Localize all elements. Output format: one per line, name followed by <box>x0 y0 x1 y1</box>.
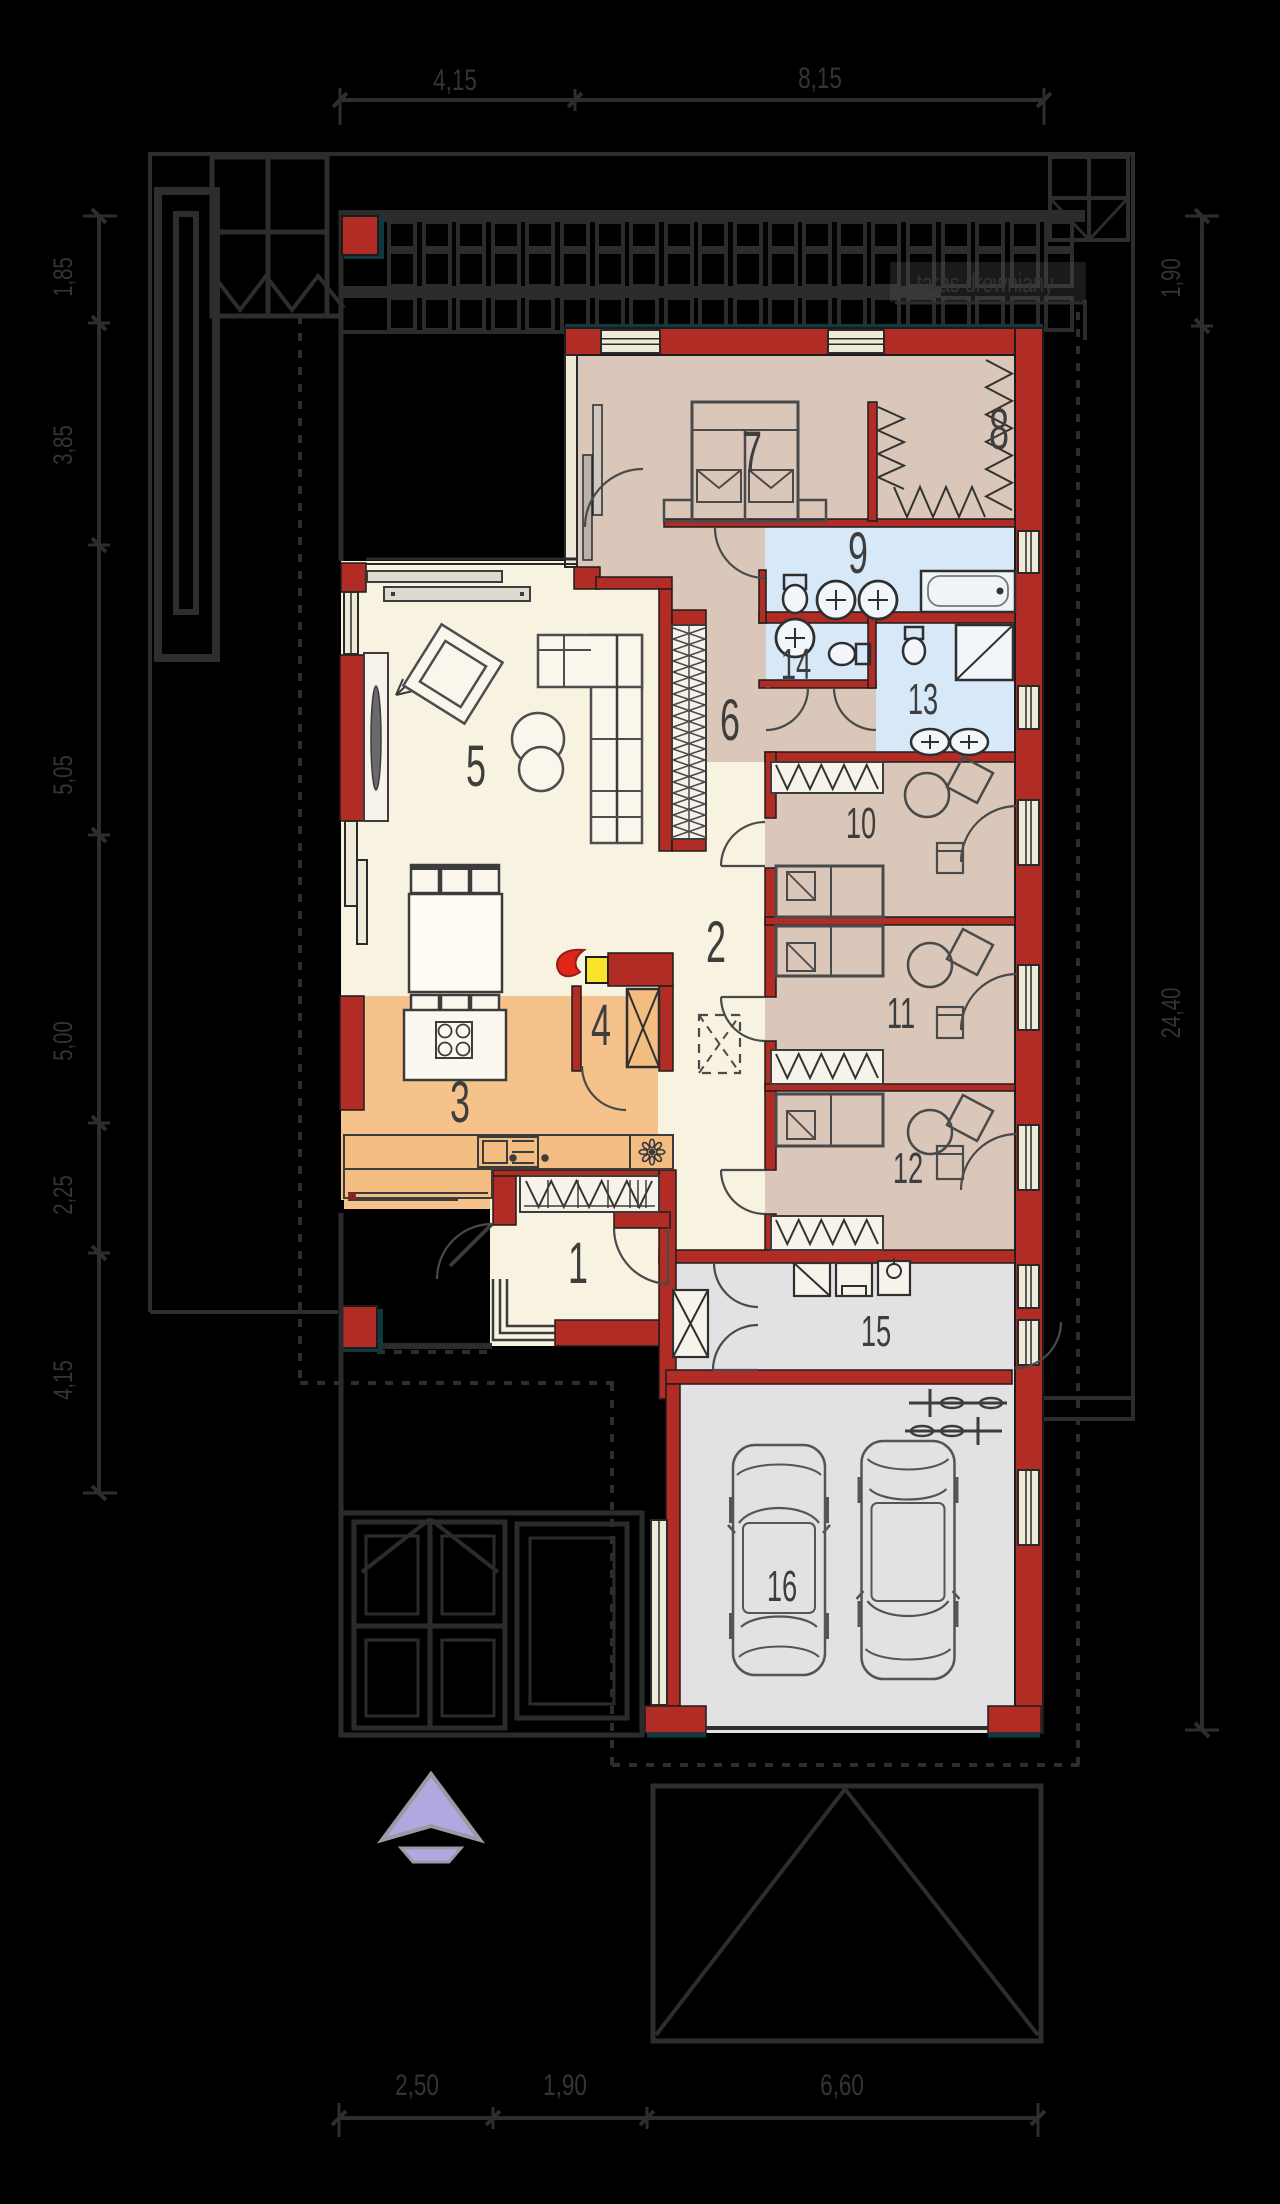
svg-text:2,25: 2,25 <box>48 1175 79 1214</box>
svg-text:8,15: 8,15 <box>798 61 842 95</box>
svg-text:8: 8 <box>989 397 1009 462</box>
svg-text:12: 12 <box>893 1143 923 1192</box>
svg-text:taras drewniany: taras drewniany <box>916 268 1053 298</box>
svg-text:1,90: 1,90 <box>543 2068 587 2102</box>
svg-text:3,85: 3,85 <box>48 425 79 464</box>
svg-text:4: 4 <box>591 993 611 1058</box>
svg-text:10: 10 <box>846 798 876 847</box>
svg-text:1,85: 1,85 <box>48 257 79 296</box>
svg-text:4,15: 4,15 <box>433 63 477 97</box>
svg-text:3: 3 <box>450 1070 470 1135</box>
svg-text:16: 16 <box>767 1561 797 1610</box>
svg-text:13: 13 <box>908 674 938 723</box>
svg-text:5: 5 <box>466 734 486 799</box>
svg-text:2: 2 <box>706 910 726 975</box>
svg-text:5,05: 5,05 <box>48 755 79 794</box>
svg-text:11: 11 <box>887 988 915 1037</box>
svg-text:1: 1 <box>568 1231 588 1296</box>
svg-text:5,00: 5,00 <box>48 1021 79 1060</box>
svg-text:6: 6 <box>720 688 740 753</box>
svg-text:9: 9 <box>848 521 868 586</box>
svg-text:2,50: 2,50 <box>395 2068 439 2102</box>
svg-text:15: 15 <box>861 1306 891 1355</box>
svg-text:14: 14 <box>781 639 811 688</box>
svg-text:7: 7 <box>742 420 762 485</box>
svg-text:4,15: 4,15 <box>48 1360 79 1399</box>
svg-text:1,90: 1,90 <box>1156 258 1187 297</box>
svg-text:24,40: 24,40 <box>1156 988 1187 1039</box>
svg-text:6,60: 6,60 <box>820 2068 864 2102</box>
